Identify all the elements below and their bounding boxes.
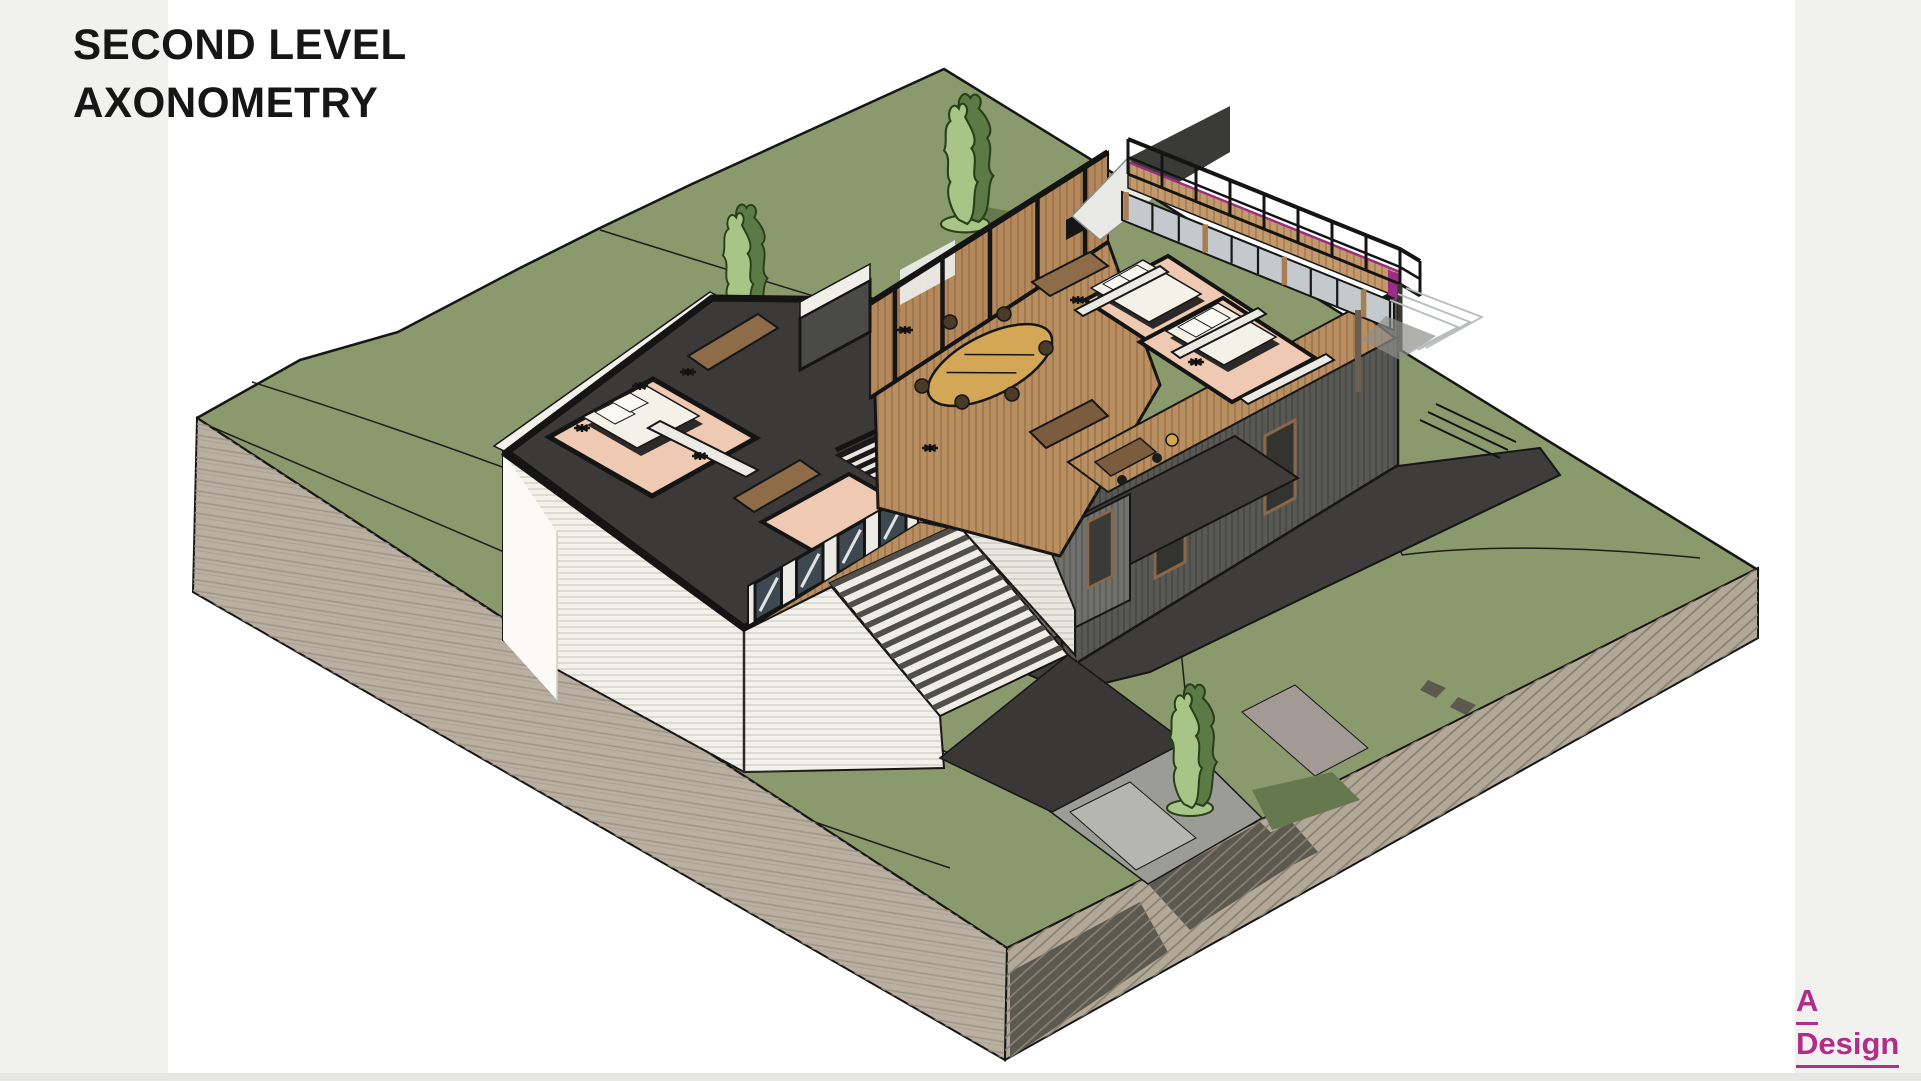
bottom-edge-strip — [0, 1073, 1921, 1081]
page-title: SECOND LEVEL AXONOMETRY — [73, 16, 407, 133]
logo-line-2[interactable]: Design — [1796, 1025, 1899, 1068]
slide-canvas: SECOND LEVEL AXONOMETRY A Design — [0, 0, 1921, 1081]
brand-logo[interactable]: A Design — [1796, 982, 1899, 1068]
title-line-2: AXONOMETRY — [73, 74, 407, 132]
logo-line-1[interactable]: A — [1796, 982, 1818, 1025]
lower-door — [1088, 510, 1112, 588]
axonometric-rendering — [0, 0, 1921, 1081]
title-line-1: SECOND LEVEL — [73, 16, 407, 74]
